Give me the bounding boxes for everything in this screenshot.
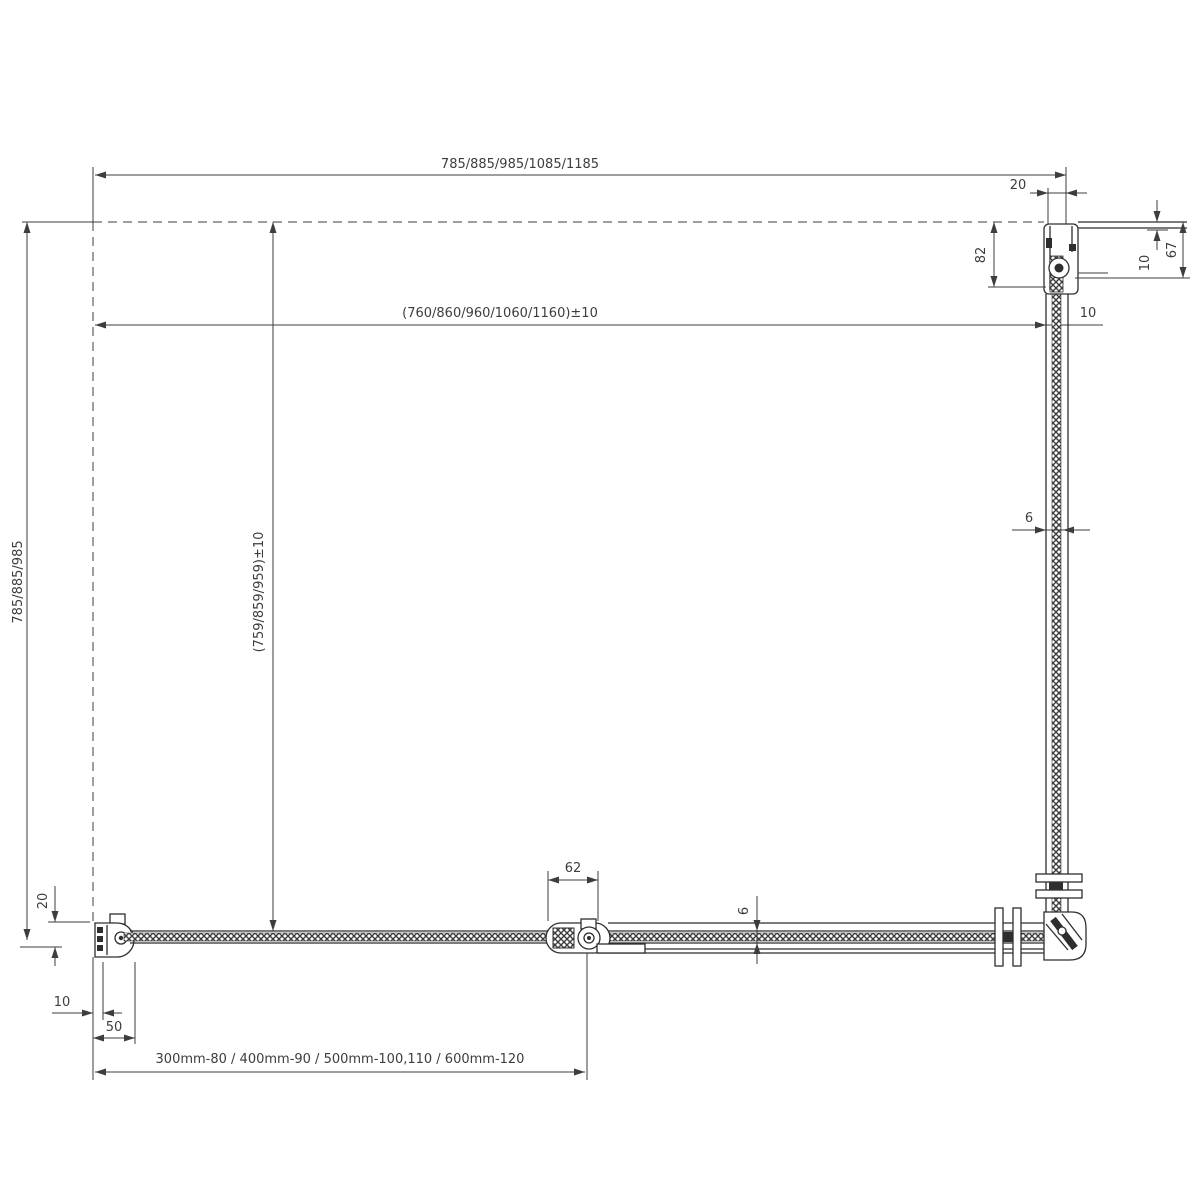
dimension-text-glass-inset-left: 10 [54,995,71,1010]
glass-clip-pin [119,936,123,940]
shower-enclosure-plan-drawing: 785/885/985/1085/1185 (760/860/960/1060/… [0,0,1200,1200]
dimension-text-glass-thickness-side: 6 [1025,511,1033,526]
hinge-glass-clamp [553,928,574,948]
dimension-text-wall-profile-total: 67 [1165,242,1180,259]
dimension-text-profile-width-left: 50 [106,1020,123,1035]
profile-detail [97,945,103,951]
dimension-text-wall-adjust-left: 20 [36,893,51,910]
clamp-plate [995,908,1003,966]
roller-pin [1055,264,1064,273]
glass-hatch [604,933,1044,941]
dimension-text-wall-glass-inset: 10 [1138,255,1153,272]
dimension-text-glass-width-inset: 10 [1080,306,1097,321]
profile-detail [97,927,103,933]
glass-hatch [1052,256,1061,954]
clamp-pin [1003,932,1013,942]
profile-detail [97,936,103,942]
clamp-pin [1049,882,1063,890]
glass-hatch [124,933,548,941]
dimension-text-glass-width: (760/860/960/1060/1160)±10 [402,306,598,321]
profile-detail [1069,244,1076,251]
dimension-text-hinge-width: 62 [565,861,582,876]
dimension-text-wall-adjust-top: 20 [1010,178,1027,193]
dimension-text-wall-profile-height: 82 [974,247,989,264]
corner-connector [1044,912,1086,960]
dimension-text-overall-depth: 785/885/985 [11,540,26,623]
dimension-text-glass-depth: (759/859/959)±10 [252,532,267,653]
hinge-cover-plate [597,944,645,953]
dimension-text-door-sizes: 300mm-80 / 400mm-90 / 500mm-100,110 / 60… [156,1052,525,1067]
profile-detail [1046,238,1052,248]
clamp-plate [1036,874,1082,882]
clamp-plate [1013,908,1021,966]
door-glass-panel [124,931,548,943]
dimension-text-glass-thickness-bottom: 6 [737,907,752,915]
dimension-text-overall-width: 785/885/985/1085/1185 [441,157,599,172]
technical-drawing-canvas: 785/885/985/1085/1185 (760/860/960/1060/… [0,0,1200,1200]
pivot-pin [587,936,591,940]
corner-screw [1058,927,1066,935]
clamp-plate [1036,890,1082,898]
